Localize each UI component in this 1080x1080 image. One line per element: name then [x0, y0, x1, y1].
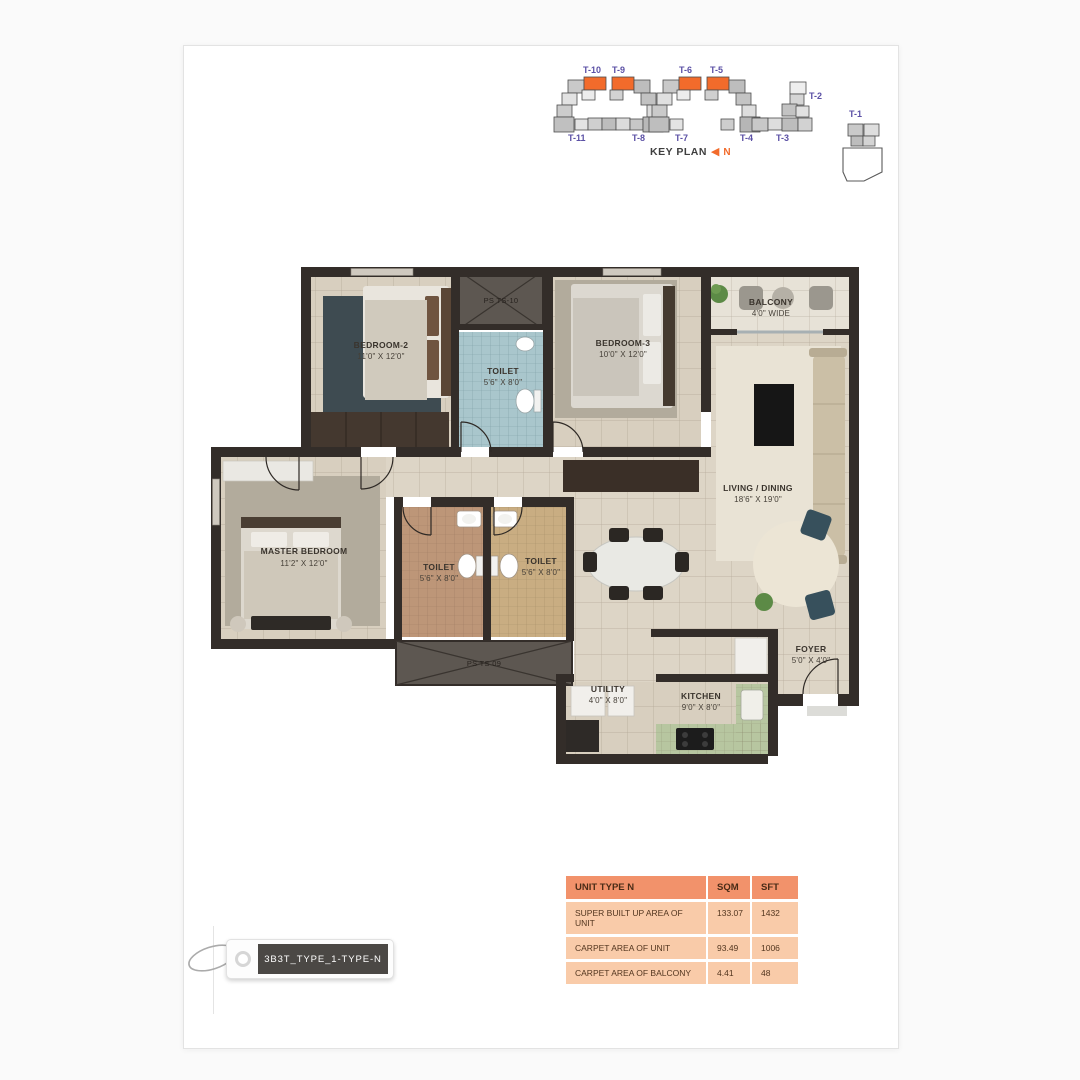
tower-label-t9: T-9 [612, 65, 625, 75]
row-sft: 1006 [752, 937, 798, 959]
tower-block-t9-highlight [612, 77, 634, 90]
row-sft: 1432 [752, 902, 798, 934]
toilet-left-dims: 5'6" X 8'0" [420, 574, 459, 583]
row-sft: 48 [752, 962, 798, 984]
table-row: SUPER BUILT UP AREA OF UNIT 133.07 1432 [566, 902, 798, 934]
area-table-header-unit-type: UNIT TYPE N [566, 876, 706, 899]
tower-label-t4: T-4 [740, 133, 753, 143]
toilet-right-dims: 5'6" X 8'0" [522, 568, 561, 577]
unit-name-tag: 3B3T_TYPE_1-TYPE-N [184, 926, 414, 1016]
t1-site-outline [843, 148, 882, 181]
table-row: CARPET AREA OF UNIT 93.49 1006 [566, 937, 798, 959]
tower-label-t6: T-6 [679, 65, 692, 75]
toilet-right-label: TOILET [525, 556, 557, 566]
tag-label: 3B3T_TYPE_1-TYPE-N [258, 944, 388, 974]
tower-label-t10: T-10 [583, 65, 601, 75]
shaft-ps-ts-09-label: PS TS 09 [467, 659, 501, 668]
bedroom-3-label: BEDROOM-3 [596, 338, 651, 348]
tower-label-t2: T-2 [809, 91, 822, 101]
tower-label-t8: T-8 [632, 133, 645, 143]
key-plan-caption: KEY PLAN ◀ N [650, 146, 731, 158]
toilet-top-label: TOILET [487, 366, 519, 376]
area-table-header-sqm: SQM [708, 876, 750, 899]
shaft-ps-ts-10-label: PS TS-10 [484, 296, 519, 305]
row-label: CARPET AREA OF UNIT [566, 937, 706, 959]
kitchen-dims: 9'0" X 8'0" [682, 703, 721, 712]
living-dining-dims: 18'6" X 19'0" [734, 495, 782, 504]
area-table-header-row: UNIT TYPE N SQM SFT [566, 876, 798, 899]
table-row: CARPET AREA OF BALCONY 4.41 48 [566, 962, 798, 984]
kitchen-label: KITCHEN [681, 691, 721, 701]
toilet-top-dims: 5'6" X 8'0" [484, 378, 523, 387]
foyer-label: FOYER [796, 644, 827, 654]
tower-label-t1: T-1 [849, 109, 862, 119]
bedroom-2-dims: 11'0" X 12'0" [357, 352, 404, 361]
row-label: CARPET AREA OF BALCONY [566, 962, 706, 984]
tower-label-t11: T-11 [568, 133, 586, 143]
brochure-page: T-10 T-9 T-6 T-5 T-2 T-11 T-8 T-7 T-4 T-… [183, 45, 899, 1049]
balcony-dims: 4'0" WIDE [752, 309, 790, 318]
row-sqm: 93.49 [708, 937, 750, 959]
area-table: UNIT TYPE N SQM SFT SUPER BUILT UP AREA … [566, 876, 798, 984]
bedroom-2-label: BEDROOM-2 [354, 340, 409, 350]
area-table-header-sft: SFT [752, 876, 798, 899]
tag-hole-icon [235, 951, 251, 967]
floor-plan: BEDROOM-2 11'0" X 12'0" TOILET 5'6" X 8'… [211, 264, 859, 769]
row-sqm: 133.07 [708, 902, 750, 934]
tower-block-t6-highlight [679, 77, 701, 90]
master-bedroom-label: MASTER BEDROOM [261, 546, 348, 556]
bedroom-2-furniture [311, 286, 451, 447]
living-dining-label: LIVING / DINING [723, 483, 793, 493]
tag-body: 3B3T_TYPE_1-TYPE-N [226, 939, 394, 979]
row-sqm: 4.41 [708, 962, 750, 984]
utility-dims: 4'0" X 8'0" [589, 696, 628, 705]
brochure-canvas: T-10 T-9 T-6 T-5 T-2 T-11 T-8 T-7 T-4 T-… [0, 0, 1080, 1080]
master-bedroom-dims: 11'2" X 12'0" [280, 559, 327, 568]
tower-block-t5-highlight [707, 77, 729, 90]
row-label: SUPER BUILT UP AREA OF UNIT [566, 902, 706, 934]
key-plan: T-10 T-9 T-6 T-5 T-2 T-11 T-8 T-7 T-4 T-… [552, 60, 900, 230]
key-plan-title: KEY PLAN [650, 146, 707, 158]
floor-plan-graphic: BEDROOM-2 11'0" X 12'0" TOILET 5'6" X 8'… [211, 264, 859, 769]
key-plan-graphic [552, 60, 900, 230]
tower-block-t10-highlight [584, 77, 606, 90]
tower-label-t7: T-7 [675, 133, 688, 143]
tower-label-t3: T-3 [776, 133, 789, 143]
tower-label-t5: T-5 [710, 65, 723, 75]
toilet-left-label: TOILET [423, 562, 455, 572]
north-label: N [723, 147, 730, 158]
utility-label: UTILITY [591, 684, 625, 694]
balcony-label: BALCONY [749, 297, 793, 307]
foyer-dims: 5'0" X 4'0" [792, 656, 831, 665]
bedroom-3-dims: 10'0" X 12'0" [599, 350, 647, 359]
north-arrow-icon: ◀ [711, 147, 719, 158]
